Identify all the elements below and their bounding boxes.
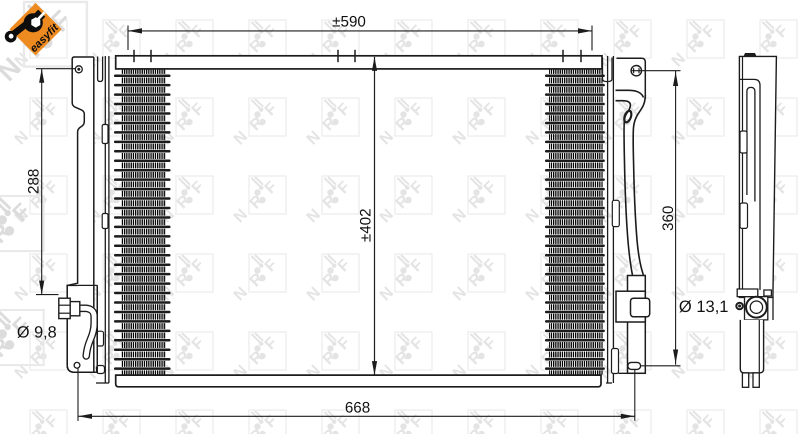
svg-text:668: 668 bbox=[345, 400, 370, 417]
svg-text:Ø 9,8: Ø 9,8 bbox=[17, 323, 57, 341]
svg-text:360: 360 bbox=[660, 206, 677, 231]
svg-text:288: 288 bbox=[26, 169, 43, 194]
svg-text:±402: ±402 bbox=[358, 208, 375, 242]
svg-text:±590: ±590 bbox=[332, 14, 366, 31]
svg-text:Ø 13,1: Ø 13,1 bbox=[679, 298, 729, 316]
